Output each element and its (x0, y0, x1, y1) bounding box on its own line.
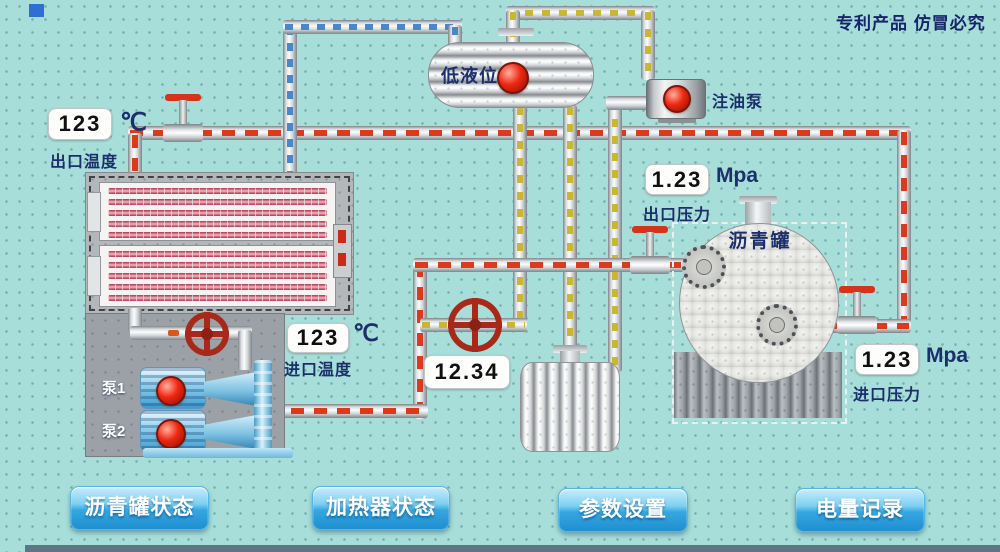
pipe-oil-nozzle (506, 10, 520, 44)
injection-pump-label: 注油泵 (712, 88, 763, 112)
pipe-drain-1 (513, 105, 527, 326)
corner-marker (29, 4, 44, 17)
handwheel-hub (469, 319, 481, 331)
heating-coil (108, 251, 327, 257)
pipe-pump-return (608, 100, 622, 372)
flange-hub (769, 317, 785, 333)
flow-indicator (132, 135, 138, 175)
shutoff-valve-outlet[interactable] (163, 94, 203, 144)
heating-coil (108, 199, 327, 205)
outlet-pressure-label: 出口压力 (643, 201, 711, 225)
heating-coil (108, 262, 327, 268)
flow-indicator (510, 12, 516, 42)
pipe-return-riser (283, 25, 297, 175)
heating-coil (108, 232, 327, 238)
flow-indicator (645, 12, 651, 78)
asphalt-tank-left-flange (682, 245, 726, 289)
outlet-temp-label: 出口温度 (50, 148, 118, 172)
pump-manifold (254, 360, 272, 452)
flow-value-display: 12.34 (424, 355, 510, 389)
heater-coil-panel-top (99, 182, 336, 241)
outlet-pressure-unit: Mpa (716, 164, 758, 188)
low-level-tank-nozzle (498, 28, 534, 36)
coil-port (338, 230, 346, 243)
inlet-temp-label: 进口温度 (284, 356, 352, 380)
heating-coil (108, 210, 327, 216)
expansion-tank (520, 362, 620, 452)
outlet-temp-display: 123 (48, 108, 112, 140)
flow-indicator (567, 107, 573, 348)
flow-indicator (417, 264, 423, 417)
patent-notice: 专利产品 仿冒必究 (836, 9, 986, 34)
bottom-bar (25, 545, 1000, 552)
pipe-oil-top (506, 6, 655, 20)
coil-port (338, 253, 346, 266)
outlet-pressure-display: 1.23 (645, 164, 709, 195)
coil-crossover (333, 224, 352, 278)
pump2-label: 泵2 (102, 420, 125, 441)
inlet-temp-display: 123 (287, 323, 349, 353)
heating-coil (108, 273, 327, 279)
inlet-pressure-unit: Mpa (926, 344, 968, 368)
pump1-indicator (156, 376, 186, 406)
flow-indicator (168, 330, 179, 336)
flow-indicator (612, 102, 618, 370)
inlet-pressure-label: 进口压力 (853, 381, 921, 405)
valve-body (837, 316, 877, 334)
flow-indicator (287, 27, 293, 173)
pipe-right-downcomer (897, 130, 911, 330)
valve-body (163, 124, 203, 142)
pump1-label: 泵1 (102, 377, 125, 398)
flow-indicator (517, 107, 523, 324)
flow-indicator (285, 24, 460, 30)
asphalt-tank-right-flange (756, 304, 798, 346)
low-level-tank-label: 低液位 (441, 62, 498, 88)
button-heater-status[interactable]: 加热器状态 (312, 486, 450, 530)
pipe-suction-drop (413, 262, 427, 419)
shutoff-valve-tank-inlet[interactable] (837, 286, 877, 336)
heating-coil (108, 295, 327, 301)
heating-coil (108, 221, 327, 227)
button-param-settings[interactable]: 参数设置 (558, 488, 688, 532)
heating-coil (108, 284, 327, 290)
valve-handwheel-heater[interactable] (185, 312, 229, 356)
asphalt-tank-label: 沥青罐 (712, 226, 808, 253)
low-level-alarm-lamp (497, 62, 529, 94)
coil-left-header (87, 256, 101, 296)
valve-handwheel-main[interactable] (448, 298, 502, 352)
pipe-return-top (283, 20, 462, 34)
valve-stem (179, 100, 187, 126)
coil-left-header (87, 192, 101, 232)
inlet-pressure-display: 1.23 (855, 344, 919, 375)
heating-coil (108, 188, 327, 194)
pipe-heater-riser (128, 133, 142, 177)
handwheel-hub (201, 328, 213, 340)
button-power-record[interactable]: 电量记录 (795, 488, 925, 532)
outlet-temp-unit: ℃ (120, 108, 147, 137)
valve-stem (646, 232, 654, 258)
flow-indicator (901, 132, 907, 328)
pipe-drain-2 (563, 105, 577, 350)
inlet-temp-unit: ℃ (353, 320, 379, 347)
flow-indicator (268, 408, 426, 414)
pump-base-header (143, 448, 293, 458)
heater-coil-panel-bottom (99, 245, 336, 307)
flow-indicator (508, 10, 653, 16)
button-asphalt-tank-status[interactable]: 沥青罐状态 (70, 486, 209, 530)
valve-body (630, 256, 670, 274)
hmi-screen: 专利产品 仿冒必究 泵1 泵2 (0, 0, 1000, 552)
flange-hub (696, 259, 712, 275)
shutoff-valve-tank-outlet[interactable] (630, 226, 670, 276)
pipe-pump-suction (266, 404, 428, 418)
pump2-indicator (156, 419, 186, 449)
pipe-oil-pump-inlet (641, 10, 655, 80)
injection-pump-indicator (663, 85, 691, 113)
valve-stem (853, 292, 861, 318)
pipe-pump-feed (238, 330, 252, 370)
